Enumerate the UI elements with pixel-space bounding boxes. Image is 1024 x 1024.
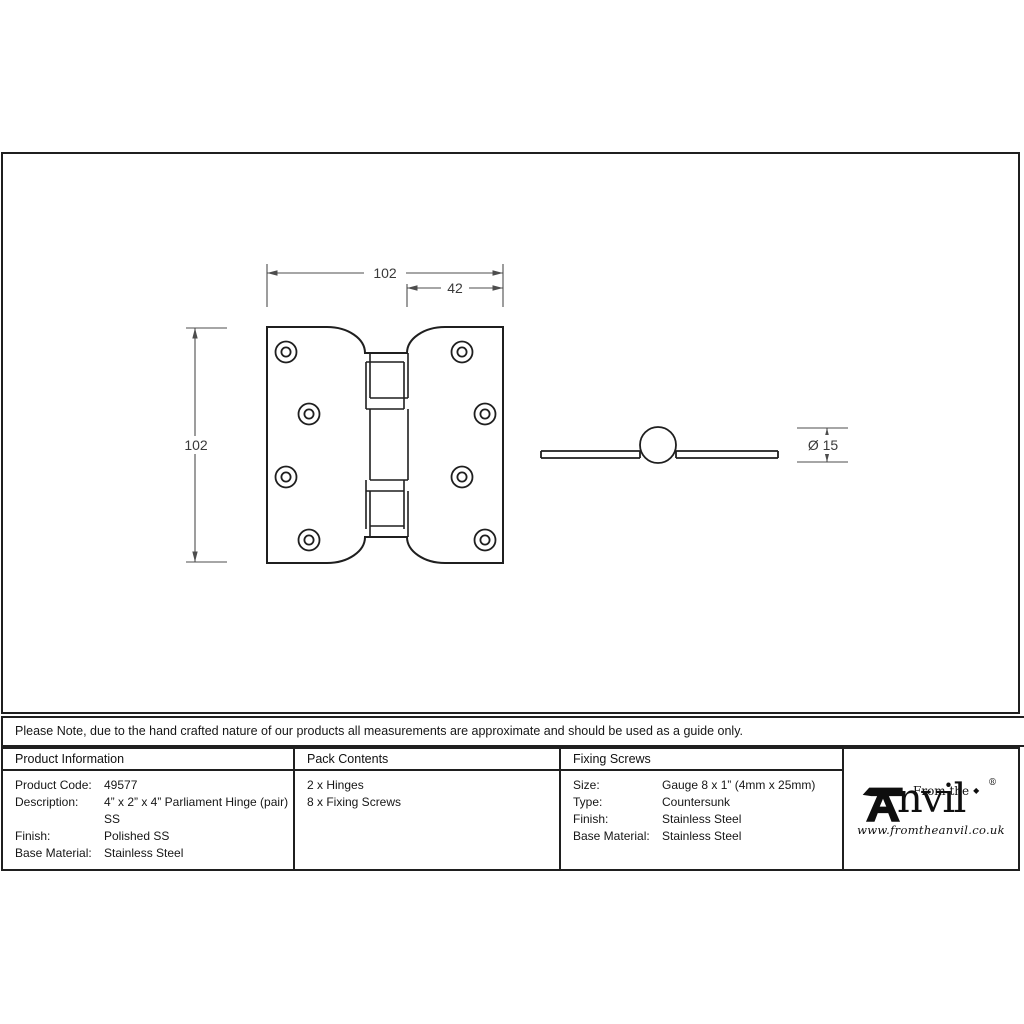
fixing-screws-header: Fixing Screws [561,749,842,771]
row-value: Stainless Steel [104,845,289,862]
row-label: Size: [573,777,662,794]
dimension-diameter-label: Ø 15 [808,437,839,453]
row-value: Countersunk [662,794,838,811]
product-information-header: Product Information [3,749,293,771]
hinge-technical-drawing: 102 42 102 [3,154,1018,712]
product-spec-sheet: 102 42 102 [0,0,1024,1024]
table-row: Finish: Polished SS [15,828,289,845]
row-label: Base Material: [573,828,662,845]
row-value: Stainless Steel [662,811,838,828]
row-value: Gauge 8 x 1” (4mm x 25mm) [662,777,838,794]
measurement-disclaimer-text: Please Note, due to the hand crafted nat… [15,724,743,738]
side-view-knuckle [640,427,676,463]
table-row: Base Material: Stainless Steel [15,845,289,862]
row-value: Stainless Steel [662,828,838,845]
pack-contents-column: Pack Contents 2 x Hinges 8 x Fixing Scre… [295,749,561,869]
row-value: 4” x 2” x 4” Parliament Hinge (pair) SS [104,794,289,828]
logo-website-url: www.fromtheanvil.co.uk [854,823,1008,837]
screw-holes [276,342,496,551]
table-row: Finish: Stainless Steel [573,811,838,828]
from-the-anvil-logo: nvil From the◆ ® www.fromtheanvil.co.uk [860,778,1002,840]
logo-prefix-text: From the [913,784,969,798]
hinge-front-view [267,327,503,563]
row-label: Finish: [15,828,104,845]
specification-table: Product Information Product Code: 49577 … [1,747,1020,871]
list-item: 2 x Hinges [307,777,555,794]
row-value: Polished SS [104,828,289,845]
table-row: Type: Countersunk [573,794,838,811]
row-label: Type: [573,794,662,811]
dimension-height-label: 102 [184,437,208,453]
pack-contents-body: 2 x Hinges 8 x Fixing Screws [295,771,559,811]
row-label: Product Code: [15,777,104,794]
row-label: Description: [15,794,104,811]
hinge-side-view [541,427,778,463]
product-information-column: Product Information Product Code: 49577 … [3,749,295,869]
hinge-knuckle-barrel [366,353,408,537]
dimension-width-label: 102 [373,265,397,281]
list-item: 8 x Fixing Screws [307,794,555,811]
side-view-leaves [541,451,778,458]
row-label: Base Material: [15,845,104,862]
fixing-screws-column: Fixing Screws Size: Gauge 8 x 1” (4mm x … [561,749,844,869]
dimension-sub-width-label: 42 [447,280,463,296]
product-information-body: Product Code: 49577 Description: 4” x 2”… [3,771,293,862]
diamond-icon: ◆ [973,786,979,795]
measurement-disclaimer-bar: Please Note, due to the hand crafted nat… [1,716,1024,747]
fixing-screws-body: Size: Gauge 8 x 1” (4mm x 25mm) Type: Co… [561,771,842,845]
dimension-height: 102 [179,328,227,562]
technical-drawing-frame: 102 42 102 [1,152,1020,714]
dimension-sub-width: 42 [407,279,503,307]
brand-logo-cell: nvil From the◆ ® www.fromtheanvil.co.uk [844,749,1018,869]
pack-contents-header: Pack Contents [295,749,559,771]
table-row: Size: Gauge 8 x 1” (4mm x 25mm) [573,777,838,794]
logo-prefix: From the◆ [913,784,979,798]
registered-trademark-symbol: ® [988,778,997,788]
table-row: Base Material: Stainless Steel [573,828,838,845]
dimension-diameter: Ø 15 [797,428,848,462]
logo-wordmark: nvil [897,776,965,822]
table-row: Description: 4” x 2” x 4” Parliament Hin… [15,794,289,828]
table-row: Product Code: 49577 [15,777,289,794]
row-value: 49577 [104,777,289,794]
row-label: Finish: [573,811,662,828]
